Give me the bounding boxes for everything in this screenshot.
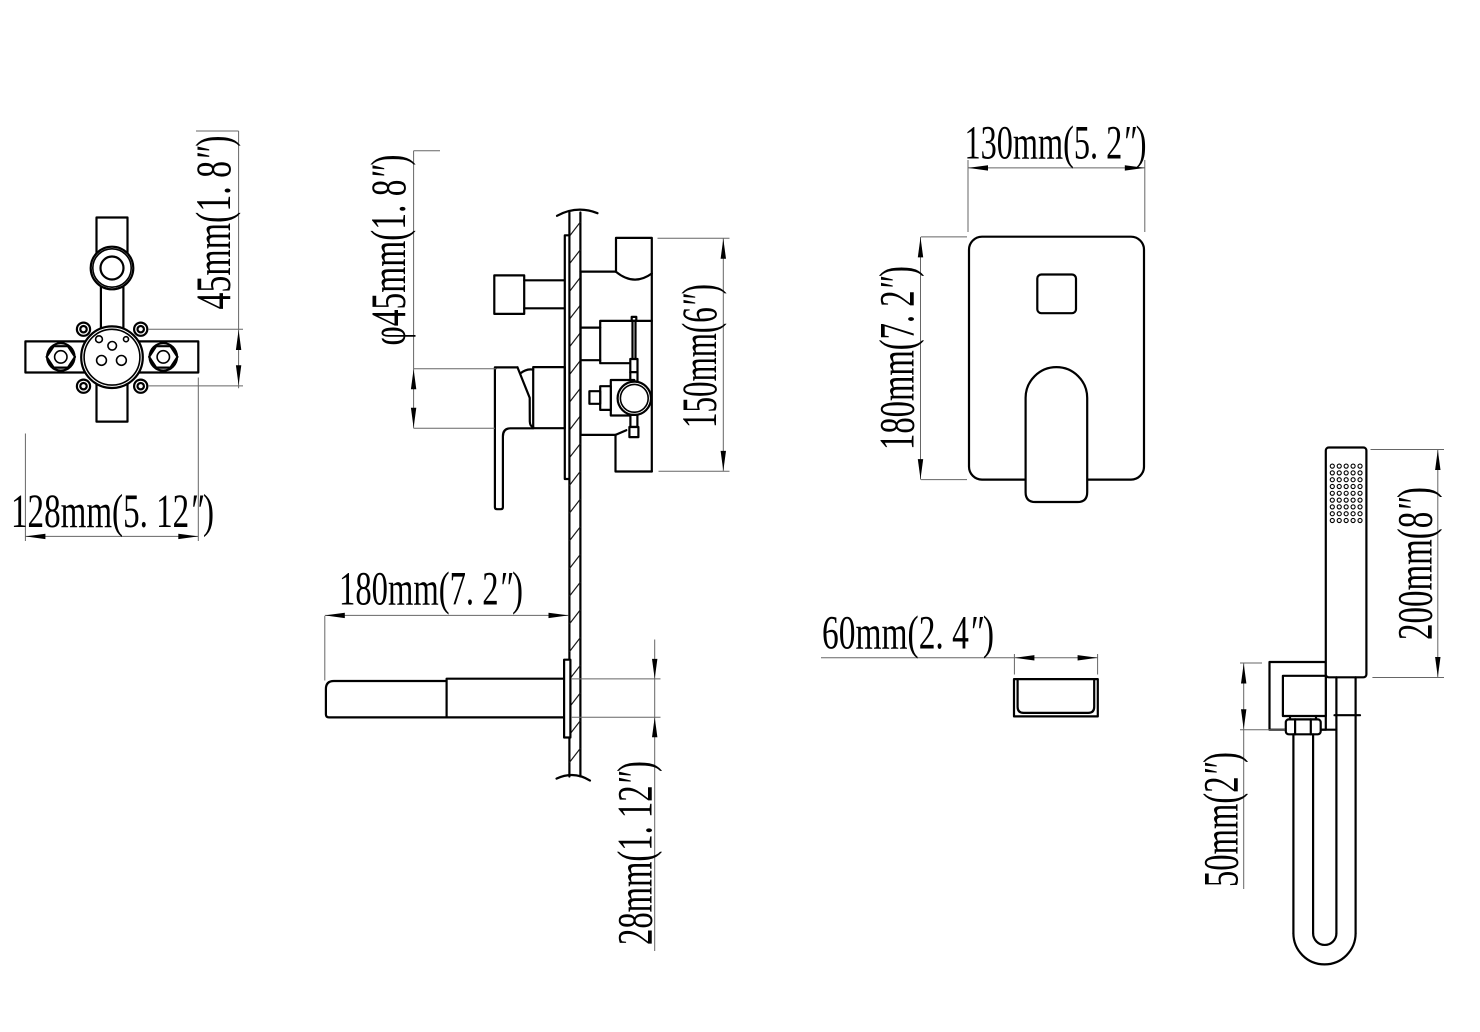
svg-text:180mm(7. 2″): 180mm(7. 2″): [339, 563, 523, 616]
svg-text:28mm(1. 12″): 28mm(1. 12″): [607, 761, 663, 945]
svg-text:45mm(1. 8″): 45mm(1. 8″): [185, 135, 241, 309]
svg-text:60mm(2. 4″): 60mm(2. 4″): [822, 607, 994, 660]
svg-text:150mm(6″): 150mm(6″): [671, 284, 727, 428]
svg-text:180mm(7. 2″): 180mm(7. 2″): [869, 266, 925, 450]
svg-text:50mm(2″): 50mm(2″): [1192, 752, 1248, 887]
svg-text:130mm(5. 2″): 130mm(5. 2″): [965, 116, 1147, 169]
svg-text:φ45mm(1. 8″): φ45mm(1. 8″): [360, 155, 416, 346]
svg-text:128mm(5. 12″): 128mm(5. 12″): [11, 485, 214, 538]
svg-text:200mm(8″): 200mm(8″): [1387, 487, 1443, 640]
